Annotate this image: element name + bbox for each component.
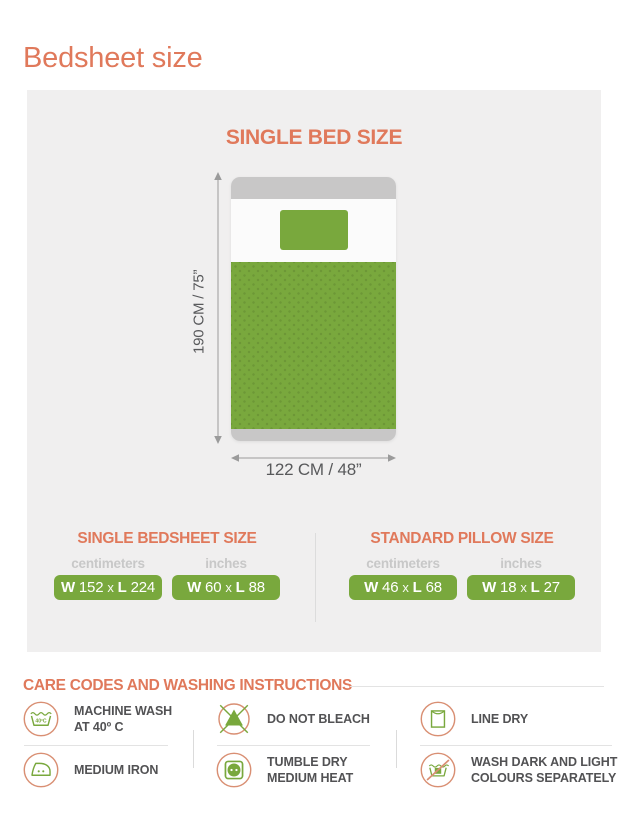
bedsheet-cm-pill: W152xL224 (54, 575, 162, 600)
care-column-divider (396, 730, 397, 768)
wash-separately-icon (419, 751, 457, 789)
page-title: Bedsheet size (23, 42, 203, 75)
care-label: MEDIUM IRON (74, 762, 158, 778)
unit-inches: inches (467, 556, 575, 571)
unit-inches: inches (172, 556, 280, 571)
w-value: 46 (382, 579, 398, 596)
care-label: MACHINE WASH AT 40º C (74, 703, 172, 736)
l-label: L (413, 579, 422, 596)
w-value: 18 (500, 579, 516, 596)
care-row-divider (24, 745, 168, 746)
vertical-dimension-arrow (212, 172, 224, 444)
care-heading-rule (350, 686, 604, 687)
l-value: 88 (249, 579, 265, 596)
tables-divider (315, 533, 316, 622)
care-item-machine-wash: 40ºC MACHINE WASH AT 40º C (22, 700, 172, 738)
l-value: 224 (131, 579, 155, 596)
bed-diagram (231, 177, 396, 441)
headboard (231, 177, 396, 199)
bedsheet-size-title: SINGLE BEDSHEET SIZE (40, 530, 294, 548)
x-separator: x (225, 580, 231, 595)
bedsheet-inches-pill: W60xL88 (172, 575, 280, 600)
w-label: W (61, 579, 75, 596)
bed-height-label: 190 CM / 75” (187, 227, 211, 397)
care-label: WASH DARK AND LIGHT COLOURS SEPARATELY (471, 754, 617, 787)
w-label: W (482, 579, 496, 596)
footboard (231, 429, 396, 441)
l-label: L (531, 579, 540, 596)
pillow-size-table: STANDARD PILLOW SIZE centimeters inches … (335, 530, 589, 600)
machine-wash-icon: 40ºC (22, 700, 60, 738)
unit-row: centimeters inches (335, 556, 589, 571)
pillow-size-title: STANDARD PILLOW SIZE (335, 530, 589, 548)
unit-centimeters: centimeters (54, 556, 162, 571)
w-label: W (364, 579, 378, 596)
care-label: LINE DRY (471, 711, 528, 727)
do-not-bleach-icon (215, 700, 253, 738)
panel-heading: SINGLE BED SIZE (27, 126, 601, 150)
pill-row: W152xL224 W60xL88 (40, 575, 294, 600)
pillow (280, 210, 348, 250)
w-value: 152 (79, 579, 103, 596)
care-row-divider (217, 745, 370, 746)
bed-width-label: 122 CM / 48” (231, 460, 396, 480)
line-dry-icon (419, 700, 457, 738)
care-section-heading: CARE CODES AND WASHING INSTRUCTIONS (23, 677, 352, 695)
care-item-do-not-bleach: DO NOT BLEACH (215, 700, 370, 738)
care-row-divider (420, 745, 612, 746)
l-value: 68 (426, 579, 442, 596)
bedsheet-infographic: Bedsheet size SINGLE BED SIZE 190 CM / 7… (0, 0, 628, 835)
pillow-inches-pill: W18xL27 (467, 575, 575, 600)
bedsheet (231, 262, 396, 429)
x-separator: x (107, 580, 113, 595)
unit-centimeters: centimeters (349, 556, 457, 571)
care-item-wash-separately: WASH DARK AND LIGHT COLOURS SEPARATELY (419, 751, 617, 789)
x-separator: x (402, 580, 408, 595)
single-bed-panel: SINGLE BED SIZE 190 CM / 75” 122 CM / 48… (27, 90, 601, 652)
medium-iron-icon (22, 751, 60, 789)
l-label: L (118, 579, 127, 596)
l-label: L (236, 579, 245, 596)
x-separator: x (520, 580, 526, 595)
l-value: 27 (544, 579, 560, 596)
tumble-dry-icon (215, 751, 253, 789)
care-label: TUMBLE DRY MEDIUM HEAT (267, 754, 353, 787)
care-item-line-dry: LINE DRY (419, 700, 528, 738)
w-value: 60 (205, 579, 221, 596)
care-column-divider (193, 730, 194, 768)
pill-row: W46xL68 W18xL27 (335, 575, 589, 600)
w-label: W (187, 579, 201, 596)
bedsheet-size-table: SINGLE BEDSHEET SIZE centimeters inches … (40, 530, 294, 600)
wash-temperature-text: 40ºC (35, 718, 47, 724)
care-item-medium-iron: MEDIUM IRON (22, 751, 158, 789)
unit-row: centimeters inches (40, 556, 294, 571)
pillow-cm-pill: W46xL68 (349, 575, 457, 600)
care-item-tumble-dry: TUMBLE DRY MEDIUM HEAT (215, 751, 353, 789)
care-label: DO NOT BLEACH (267, 711, 370, 727)
